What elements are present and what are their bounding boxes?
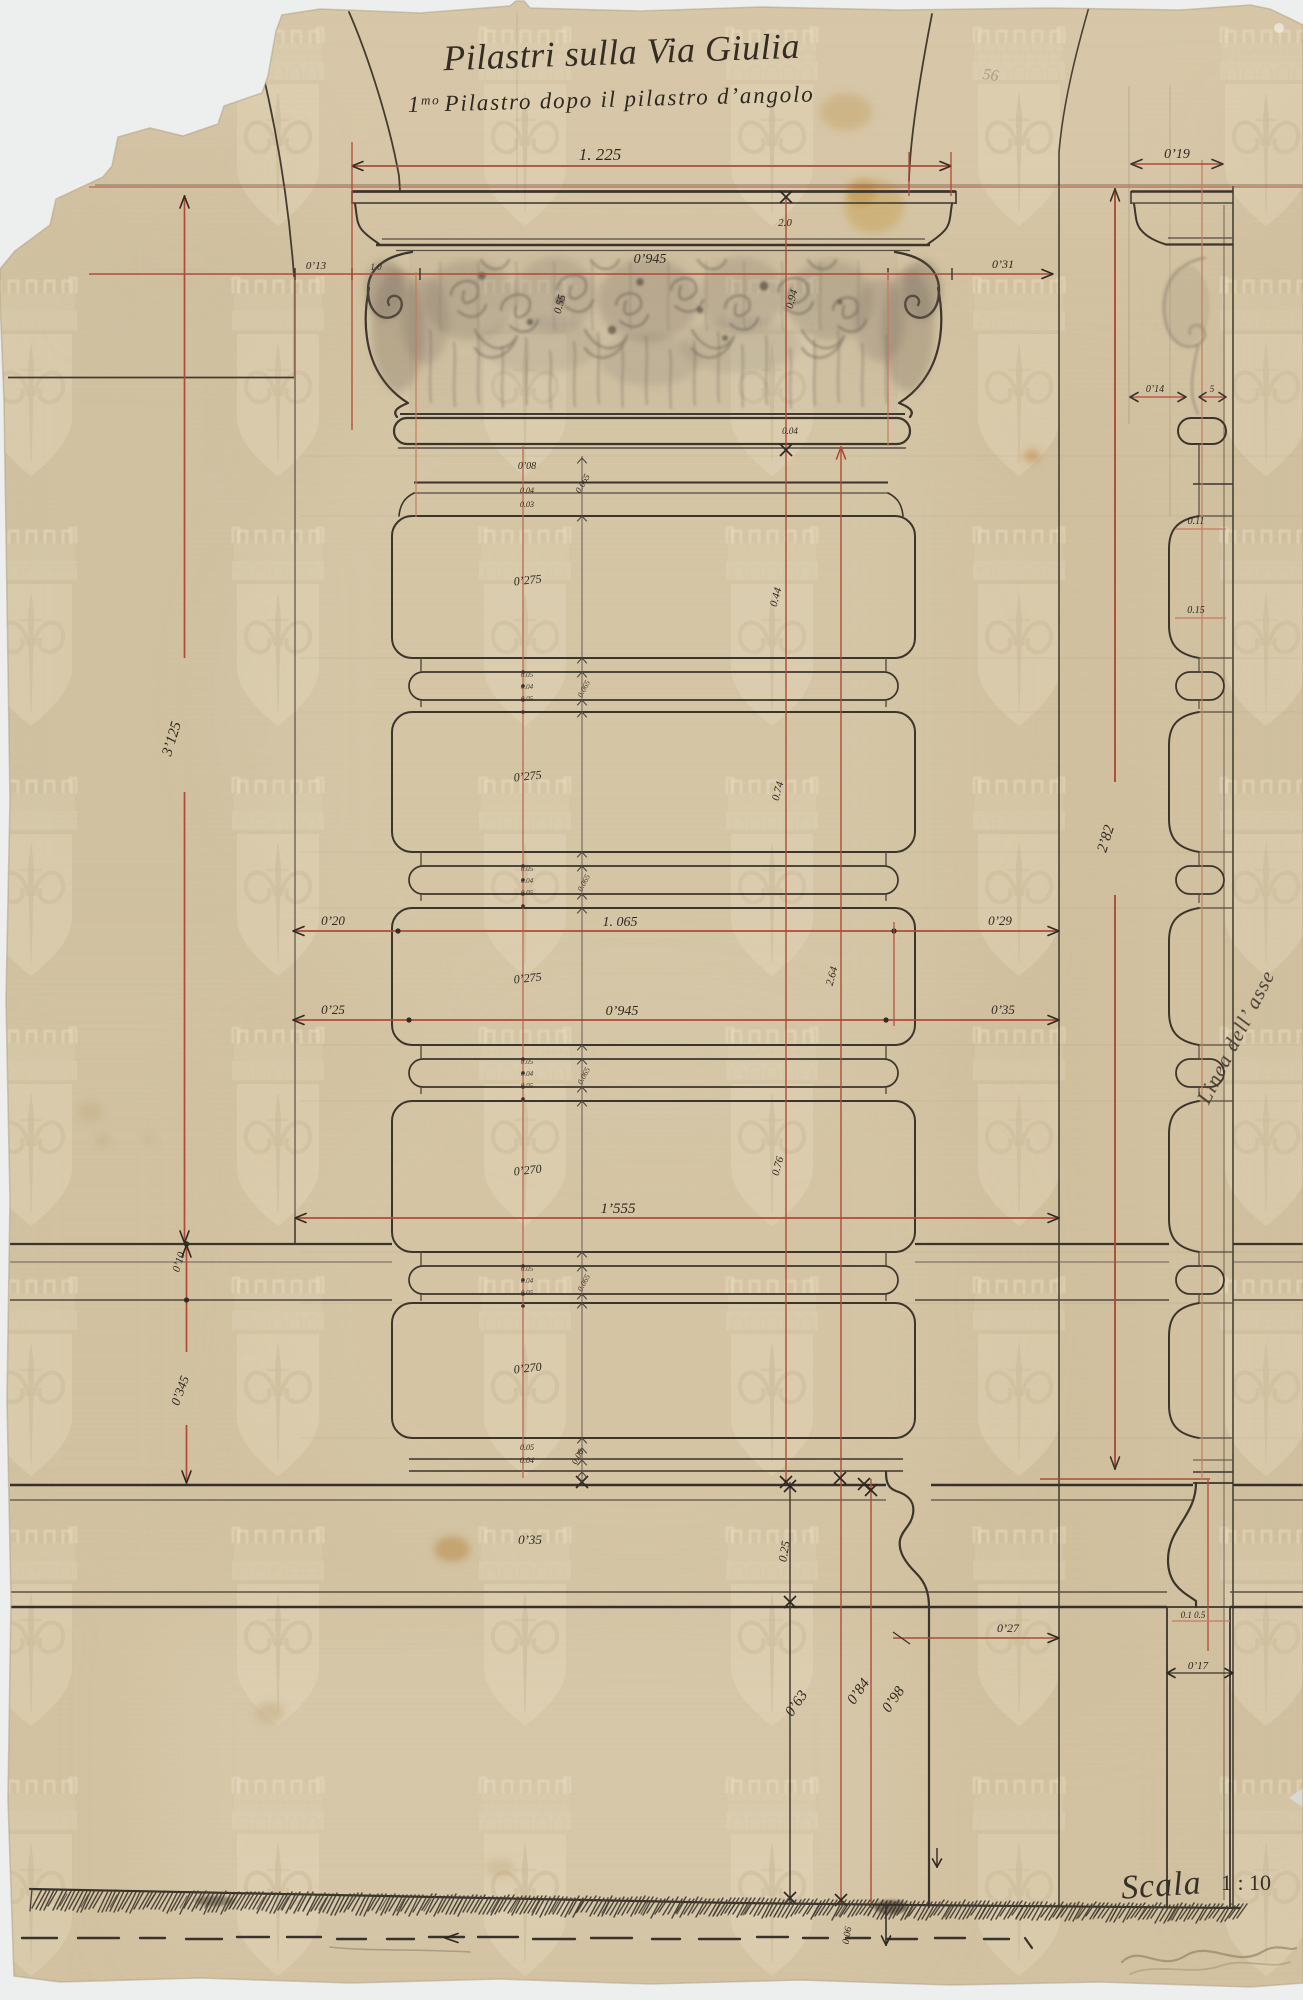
svg-text:0’945: 0’945 xyxy=(606,1004,639,1019)
svg-text:5: 5 xyxy=(1210,384,1215,394)
svg-text:0’275: 0’275 xyxy=(513,768,542,785)
svg-text:0’17: 0’17 xyxy=(1188,1660,1209,1672)
svg-text:0.03: 0.03 xyxy=(520,500,534,509)
svg-text:0.1 0.5: 0.1 0.5 xyxy=(1181,1610,1206,1620)
svg-text:0’20: 0’20 xyxy=(321,913,345,928)
svg-text:2.0: 2.0 xyxy=(778,217,792,229)
svg-text:1 : 10: 1 : 10 xyxy=(1221,1870,1271,1895)
svg-text:0’270: 0’270 xyxy=(513,1360,542,1377)
svg-text:Scala: Scala xyxy=(1120,1864,1203,1907)
svg-text:0’13: 0’13 xyxy=(306,260,327,272)
svg-text:0.11: 0.11 xyxy=(1188,516,1205,527)
svg-text:1. 225: 1. 225 xyxy=(579,145,622,164)
svg-text:0’270: 0’270 xyxy=(513,1162,542,1179)
svg-text:1’555: 1’555 xyxy=(601,1201,636,1217)
svg-text:0.04: 0.04 xyxy=(520,486,534,495)
svg-text:0.15: 0.15 xyxy=(1187,605,1205,616)
svg-text:0’275: 0’275 xyxy=(513,970,542,987)
svg-text:0.04: 0.04 xyxy=(782,426,798,436)
svg-text:0’25: 0’25 xyxy=(321,1002,345,1017)
svg-text:0’29: 0’29 xyxy=(988,913,1012,928)
svg-text:0’35: 0’35 xyxy=(518,1532,542,1547)
svg-text:1 0: 1 0 xyxy=(370,262,382,272)
svg-text:0’35: 0’35 xyxy=(991,1002,1015,1017)
svg-text:0’275: 0’275 xyxy=(513,572,542,589)
svg-text:0’19: 0’19 xyxy=(1164,147,1190,162)
svg-text:0’945: 0’945 xyxy=(634,252,667,267)
svg-text:0’27: 0’27 xyxy=(997,1621,1020,1635)
svg-text:0’08: 0’08 xyxy=(518,461,536,472)
svg-text:0’14: 0’14 xyxy=(1146,384,1164,395)
svg-text:56: 56 xyxy=(982,66,1000,85)
svg-text:1. 065: 1. 065 xyxy=(603,915,638,930)
svg-text:0’31: 0’31 xyxy=(992,257,1014,271)
svg-text:0.05: 0.05 xyxy=(520,1443,534,1452)
svg-text:0.04: 0.04 xyxy=(520,1456,534,1465)
